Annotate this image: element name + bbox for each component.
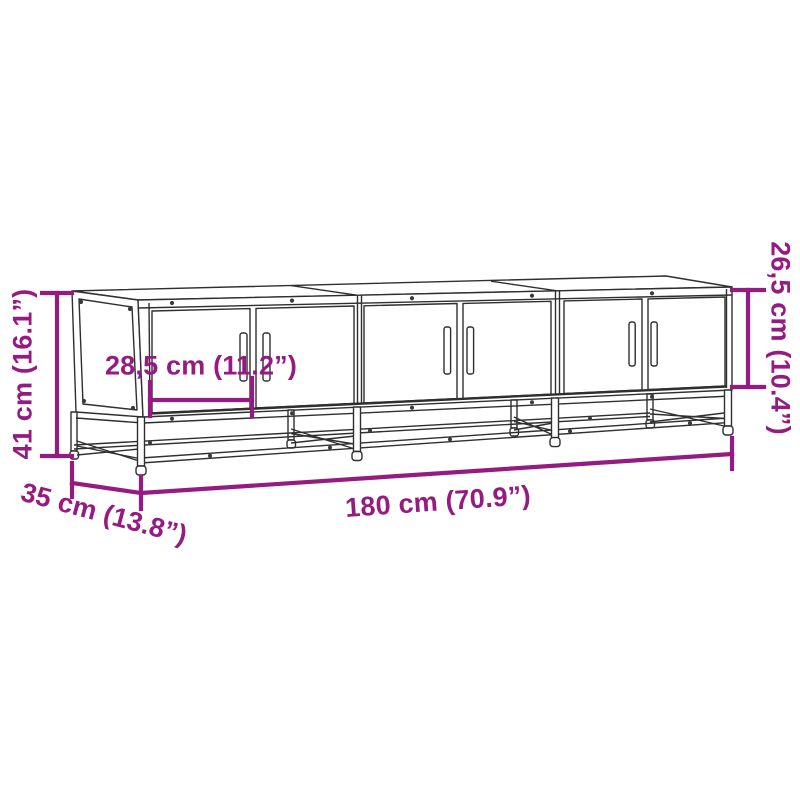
door-height-dimension-label: 26,5 cm (10.4”)	[765, 241, 796, 435]
height-dimension-line	[42, 293, 72, 456]
height-dimension-label: 41 cm (16.1”)	[8, 289, 39, 460]
door-width-dimension-label: 28,5 cm (11.2”)	[105, 351, 297, 382]
product-dimension-diagram: 41 cm (16.1”) 28,5 cm (11.2”) 26,5 cm (1…	[0, 0, 800, 800]
cross-braces	[77, 409, 725, 461]
cabinet-line-drawing	[0, 0, 800, 800]
door-height-dimension-line	[732, 290, 764, 387]
